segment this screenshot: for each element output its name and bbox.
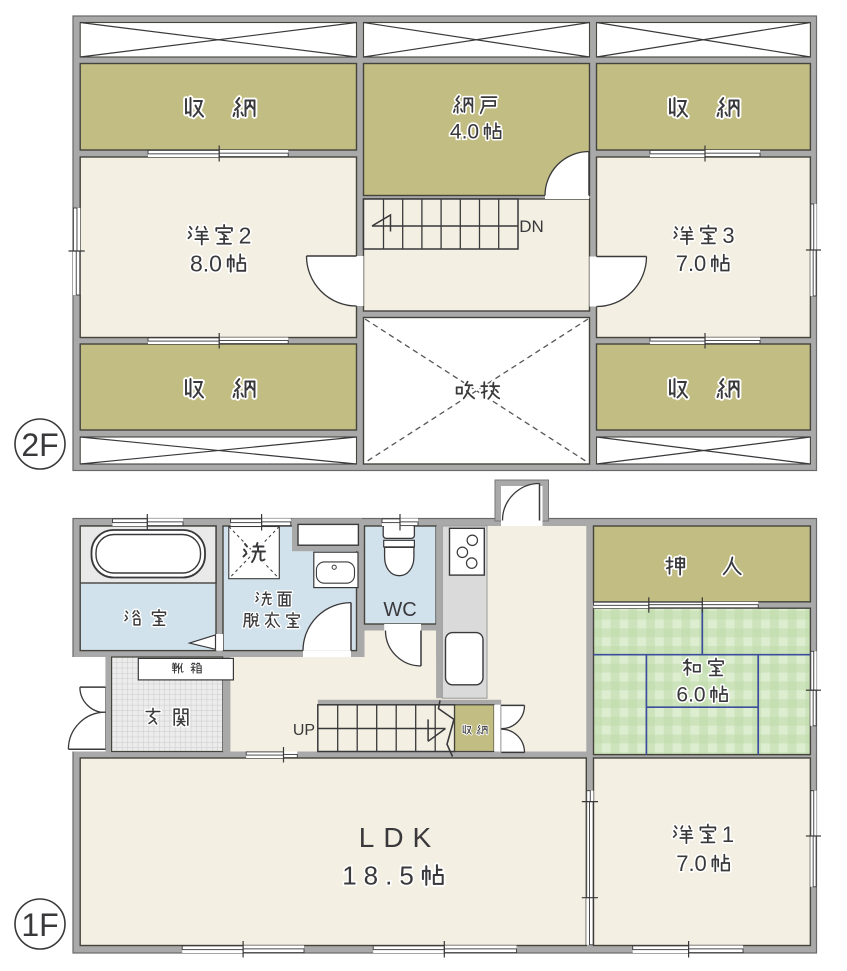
svg-text:3: 3	[722, 223, 734, 248]
svg-text:7.0: 7.0	[676, 851, 707, 876]
svg-text:8.0: 8.0	[190, 250, 222, 276]
svg-text:6.0: 6.0	[676, 684, 705, 707]
svg-text:UP: UP	[293, 722, 315, 739]
svg-text:1F: 1F	[21, 907, 58, 943]
svg-text:7.0: 7.0	[676, 251, 707, 276]
svg-text:1: 1	[722, 822, 734, 847]
svg-text:18.5: 18.5	[342, 860, 421, 890]
svg-text:2: 2	[239, 222, 252, 248]
svg-text:DN: DN	[519, 217, 544, 236]
svg-text:LDK: LDK	[359, 822, 440, 853]
svg-text:4.0: 4.0	[450, 121, 479, 144]
svg-text:WC: WC	[383, 599, 416, 621]
svg-text:2F: 2F	[21, 427, 58, 463]
